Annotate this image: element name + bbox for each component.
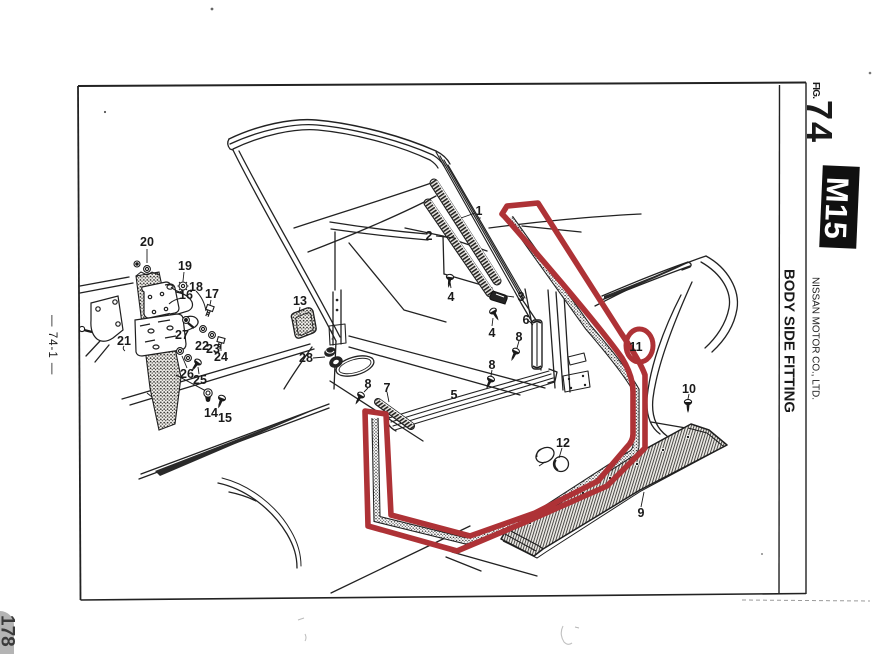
svg-text:12: 12 xyxy=(556,436,570,450)
svg-text:18: 18 xyxy=(189,280,203,294)
svg-text:4: 4 xyxy=(448,290,455,304)
svg-text:11: 11 xyxy=(629,340,642,354)
svg-text:74: 74 xyxy=(799,100,840,144)
svg-text:17: 17 xyxy=(205,287,219,301)
svg-text:5: 5 xyxy=(451,388,458,402)
svg-text:FIG.: FIG. xyxy=(810,82,821,99)
svg-text:25: 25 xyxy=(193,373,207,387)
svg-text:28: 28 xyxy=(299,351,313,365)
svg-text:1: 1 xyxy=(476,204,483,218)
svg-text:9: 9 xyxy=(638,506,645,520)
svg-text:8: 8 xyxy=(489,358,496,372)
svg-text:10: 10 xyxy=(682,382,696,396)
svg-text:6: 6 xyxy=(523,313,530,327)
svg-text:8: 8 xyxy=(516,330,523,344)
svg-text:27: 27 xyxy=(175,328,189,342)
svg-text:14: 14 xyxy=(204,406,218,420)
svg-text:15: 15 xyxy=(218,411,232,425)
svg-text:2: 2 xyxy=(426,229,433,243)
svg-text:BODY SIDE FITTING: BODY SIDE FITTING xyxy=(781,269,798,413)
svg-text:24: 24 xyxy=(214,350,228,364)
svg-text:4: 4 xyxy=(489,326,496,340)
svg-text:26: 26 xyxy=(180,367,194,381)
svg-text:3: 3 xyxy=(518,290,525,304)
svg-text:19: 19 xyxy=(178,259,192,273)
svg-text:NISSAN MOTOR CO., LTD.: NISSAN MOTOR CO., LTD. xyxy=(810,277,821,400)
svg-text:— 74-1 —: — 74-1 — xyxy=(46,315,58,375)
svg-text:13: 13 xyxy=(293,294,307,308)
svg-text:7: 7 xyxy=(384,381,391,395)
svg-text:21: 21 xyxy=(117,334,131,348)
svg-text:178: 178 xyxy=(0,615,18,647)
svg-text:8: 8 xyxy=(365,377,372,391)
svg-text:M15: M15 xyxy=(818,176,856,239)
svg-text:20: 20 xyxy=(140,235,154,249)
